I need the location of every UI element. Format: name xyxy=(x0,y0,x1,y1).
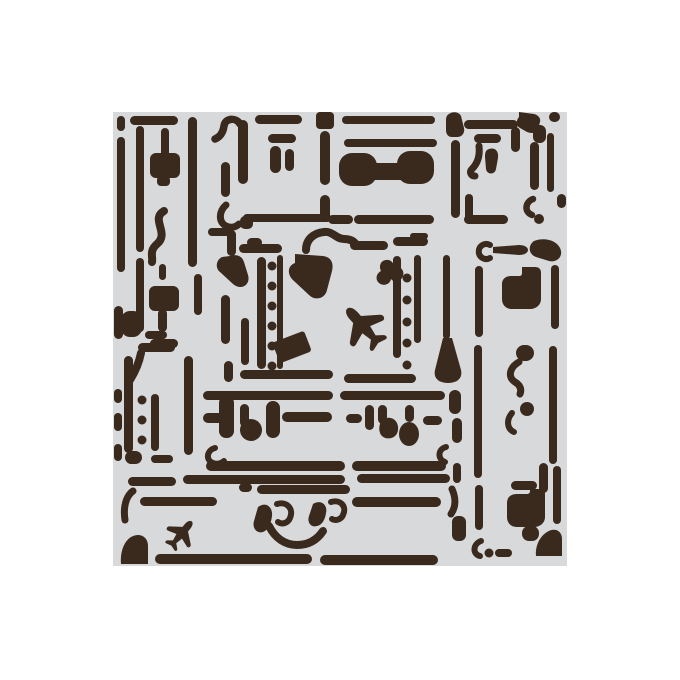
luggage-stencil-graphic xyxy=(113,112,567,566)
trunk-right xyxy=(474,239,562,557)
corner-guard-icon xyxy=(289,254,333,298)
product-image xyxy=(0,0,680,680)
strap-end-icon xyxy=(435,338,462,383)
latch-icon xyxy=(507,489,545,527)
handle-curls-icon xyxy=(253,501,344,545)
strap-wave-icon xyxy=(152,211,164,262)
handle-icon xyxy=(339,151,434,186)
suitcase-middle xyxy=(203,390,462,483)
airplane-icon xyxy=(331,294,396,359)
corner-guard-icon xyxy=(217,255,249,287)
suitcase-bottom xyxy=(121,483,466,565)
handle-icon xyxy=(306,232,357,250)
latch-knob-icon xyxy=(240,419,262,441)
rivet-dots xyxy=(268,262,277,371)
airplane-icon xyxy=(159,512,203,557)
strap-column xyxy=(215,119,253,229)
stencil-sheet xyxy=(113,112,567,566)
rivet-dots xyxy=(403,274,412,370)
latch-icon xyxy=(502,267,541,309)
buckle-ring-icon xyxy=(479,244,490,259)
buckle-icon xyxy=(150,153,180,178)
corner-foot-icon xyxy=(121,535,148,564)
suitcase-top xyxy=(243,112,464,224)
rivet-dots xyxy=(138,396,147,445)
corner-foot-icon xyxy=(536,530,562,556)
trunk-lower-left xyxy=(114,339,193,464)
suitcase-center xyxy=(208,228,461,383)
trunk-top-left xyxy=(114,116,202,339)
trunk-top-right xyxy=(464,112,566,224)
latch-knob-icon xyxy=(399,422,419,446)
divider-dashes xyxy=(128,474,450,486)
latch-knob-icon xyxy=(379,418,398,439)
buckle-icon xyxy=(149,286,179,311)
